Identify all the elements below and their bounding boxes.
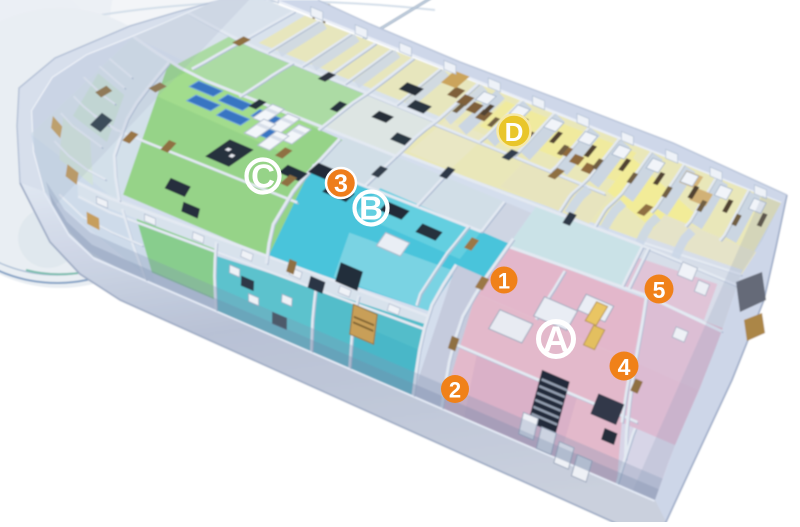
svg-text:5: 5 [653,277,666,303]
svg-text:A: A [543,319,569,360]
svg-text:C: C [251,158,275,195]
svg-text:1: 1 [498,269,510,294]
svg-text:2: 2 [449,378,461,403]
svg-text:4: 4 [618,354,631,380]
svg-text:D: D [505,117,524,147]
svg-text:3: 3 [334,170,348,198]
svg-text:B: B [359,190,383,227]
